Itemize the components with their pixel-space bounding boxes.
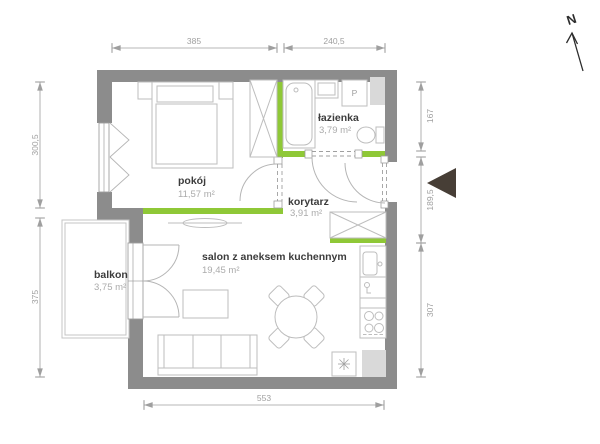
wall-right-lower <box>385 202 397 389</box>
bathroom-shaft <box>370 77 385 105</box>
bathroom-door-icon <box>305 150 362 202</box>
wall-left-upper <box>97 70 112 123</box>
dining-set-icon <box>268 285 326 350</box>
dimension-top-left: 385 <box>187 36 201 46</box>
nightstand-right-icon <box>219 82 233 99</box>
wall-pokoj-salon <box>143 208 283 214</box>
room-area-korytarz: 3,91 m² <box>290 208 322 219</box>
wall-pokoj-lazienka <box>277 82 283 158</box>
washing-machine-label: P <box>352 88 358 98</box>
coffee-table-icon <box>183 290 228 318</box>
room-label-korytarz: korytarz <box>288 196 329 208</box>
dimension-left-upper: 300,5 <box>30 134 40 156</box>
bedroom-wardrobe-icon <box>250 80 277 157</box>
room-label-salon: salon z aneksem kuchennym <box>202 251 347 263</box>
north-label: N <box>565 11 579 28</box>
corridor-wardrobe-icon <box>330 212 386 238</box>
tv-sideboard-icon <box>168 219 242 228</box>
washing-machine-icon: P <box>342 80 367 106</box>
bathtub-icon <box>283 80 315 148</box>
kitchen-shaft <box>362 350 386 377</box>
north-arrow-icon: N <box>565 11 583 71</box>
bedroom-door-icon <box>240 157 282 208</box>
appliance-asterisk-icon <box>338 358 350 370</box>
sofa-icon <box>158 335 257 375</box>
floor-plan-drawing: P <box>0 0 600 444</box>
dimension-left-lower: 375 <box>30 290 40 304</box>
dining-table-icon <box>275 296 317 338</box>
dimension-right-upper: 167 <box>425 109 435 123</box>
nightstand-left-icon <box>138 82 152 99</box>
dimension-right-lower: 307 <box>425 303 435 317</box>
floor-plan-page: P <box>0 0 600 444</box>
fridge-icon <box>332 352 356 376</box>
room-area-salon: 19,45 m² <box>202 265 240 276</box>
room-label-lazienka: łazienka <box>318 112 359 124</box>
bedroom-window-icon <box>97 123 129 192</box>
room-area-lazienka: 3,79 m² <box>319 125 351 136</box>
dimension-right-middle: 189,5 <box>425 189 435 211</box>
wall-right-upper <box>385 70 397 162</box>
wall-bottom <box>128 377 397 389</box>
toilet-icon <box>357 127 384 143</box>
room-label-pokoj: pokój <box>178 175 206 187</box>
bathroom-sink-icon <box>315 80 338 98</box>
dimension-top-right: 240,5 <box>323 36 345 46</box>
dimension-bottom: 553 <box>257 393 271 403</box>
entrance-door-icon <box>345 156 388 208</box>
wall-lazienka-korytarz-left <box>277 151 307 157</box>
balcony-door-icon <box>128 243 179 319</box>
room-area-pokoj: 11,57 m² <box>178 189 215 200</box>
room-area-balkon: 3,75 m² <box>94 282 126 293</box>
room-label-balkon: balkon <box>94 269 128 281</box>
